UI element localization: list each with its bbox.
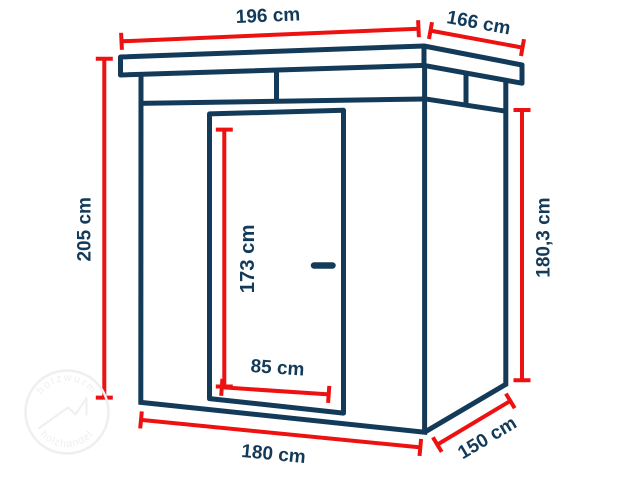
svg-text:180,3 cm: 180,3 cm [533, 197, 554, 277]
svg-text:205 cm: 205 cm [74, 197, 95, 261]
svg-text:196 cm: 196 cm [235, 4, 300, 28]
svg-text:150 cm: 150 cm [454, 413, 520, 464]
svg-text:173 cm: 173 cm [237, 225, 259, 294]
svg-text:85 cm: 85 cm [250, 356, 305, 381]
svg-text:holzwurm: holzwurm [34, 372, 100, 397]
svg-text:180 cm: 180 cm [240, 441, 306, 468]
